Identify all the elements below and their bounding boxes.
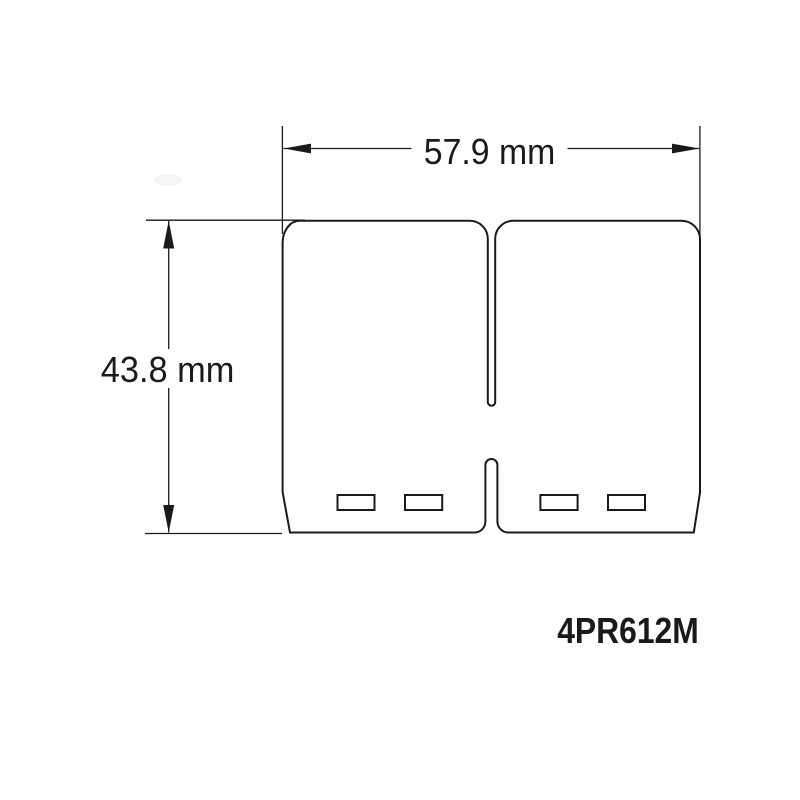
- svg-text:4PR612M: 4PR612M: [557, 610, 699, 651]
- svg-text:57.9 mm: 57.9 mm: [424, 131, 556, 172]
- svg-text:43.8 mm: 43.8 mm: [101, 349, 235, 390]
